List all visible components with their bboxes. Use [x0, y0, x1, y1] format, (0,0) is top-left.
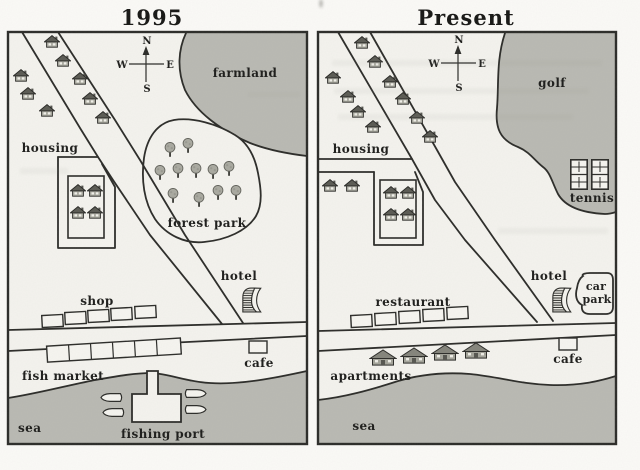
scanned-map-figure: 1995 farmland forest park [0, 0, 640, 470]
paper-grain-overlay [0, 0, 640, 470]
map-figure-svg: 1995 farmland forest park [0, 0, 640, 470]
